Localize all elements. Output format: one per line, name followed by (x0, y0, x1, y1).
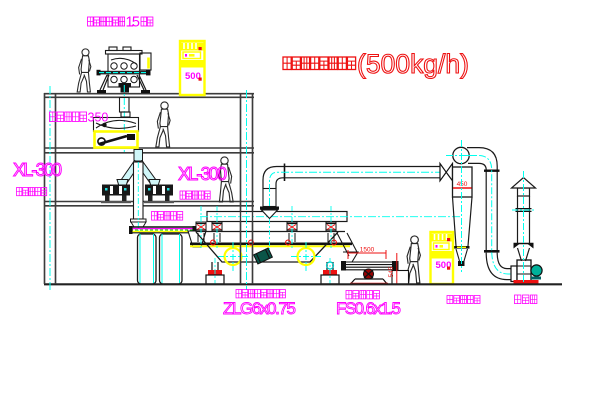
svg-text:350: 350 (88, 111, 109, 125)
svg-text:XL-300: XL-300 (178, 164, 227, 184)
svg-text:FS0.6x1.5: FS0.6x1.5 (336, 299, 401, 318)
svg-text:1.5: 1.5 (126, 15, 141, 31)
svg-text:(500kg/h): (500kg/h) (357, 49, 469, 79)
svg-text:450: 450 (457, 181, 468, 188)
svg-text:1500: 1500 (360, 247, 375, 254)
svg-text:500: 500 (185, 71, 201, 82)
svg-text:ZLG6x0.75: ZLG6x0.75 (223, 299, 296, 318)
svg-text:XL-300: XL-300 (13, 160, 62, 180)
svg-text:545: 545 (388, 266, 395, 277)
